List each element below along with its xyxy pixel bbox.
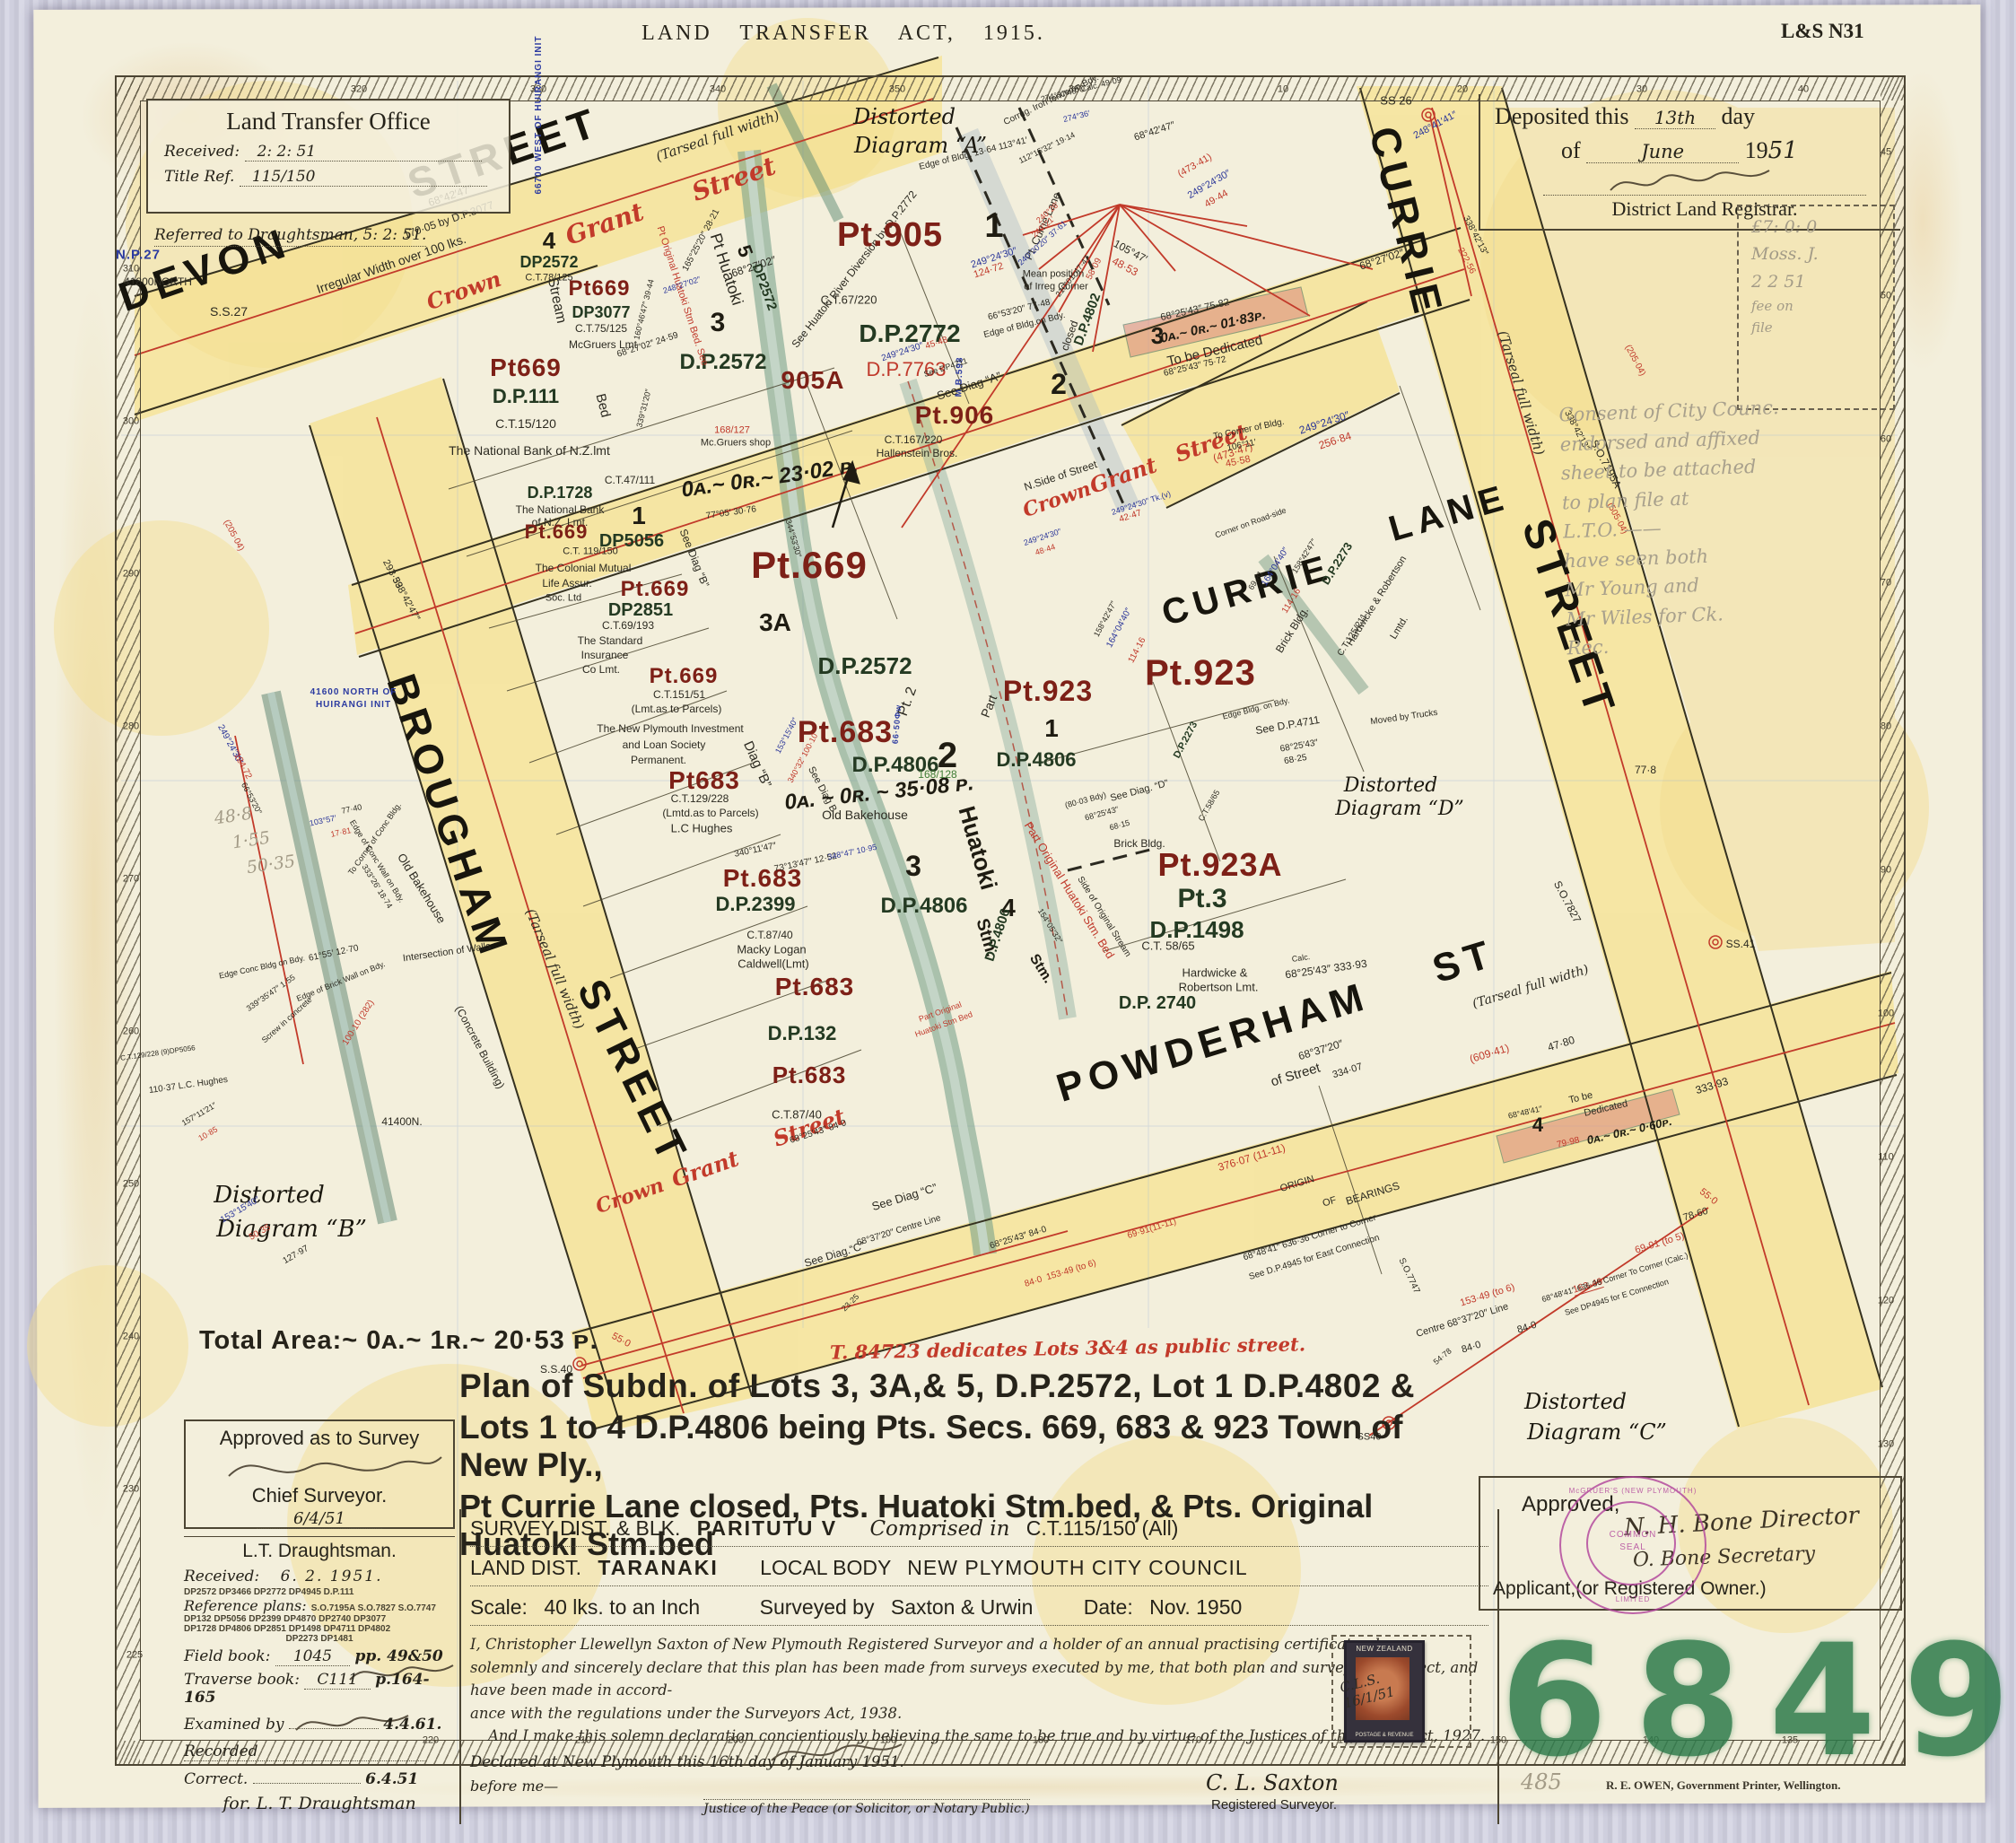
lto-ref-value: 115/150 xyxy=(240,168,487,187)
date-value: Nov. 1950 xyxy=(1139,1595,1242,1619)
map-label: 230 xyxy=(123,1485,139,1495)
seal-seal: SEAL xyxy=(1561,1542,1705,1552)
survey-dist-value: PARITUTU V xyxy=(686,1516,864,1540)
map-label: 1 xyxy=(1044,716,1059,741)
map-label: DP2572 xyxy=(519,254,578,270)
scale-value: 40 lks. to an Inch xyxy=(533,1595,754,1619)
map-label: 300 xyxy=(123,417,139,427)
map-label: Distorted xyxy=(1524,1391,1627,1412)
map-label: Distorted xyxy=(853,106,956,127)
map-label: 270 xyxy=(123,875,139,885)
map-label: 2 xyxy=(1051,370,1067,398)
stamp-country: NEW ZEALAND xyxy=(1347,1645,1422,1653)
deposited-month: June xyxy=(1586,141,1739,163)
ref-plans-line3: DP132 DP5056 DP2399 DP4870 DP2740 DP3077 xyxy=(184,1614,455,1624)
chief-date: 6/4/51 xyxy=(257,1509,382,1529)
map-label: 168/128 xyxy=(918,769,956,780)
local-body-label: LOCAL BODY xyxy=(760,1556,891,1579)
printer-line: R. E. OWEN, Government Printer, Wellingt… xyxy=(1606,1778,1840,1793)
map-label: D.P.2572 xyxy=(680,352,767,373)
land-dist-label: LAND DIST. xyxy=(470,1556,581,1579)
act-title: LAND TRANSFER ACT, 1915. xyxy=(574,22,1113,46)
scale-label: Scale: xyxy=(470,1595,528,1619)
map-label: The New Plymouth Investment xyxy=(597,723,743,734)
map-label: DP3077 xyxy=(572,304,630,320)
map-label: 80 xyxy=(1881,722,1891,732)
plan-title-line2: Lots 1 to 4 D.P.4806 being Pts. Secs. 66… xyxy=(459,1409,1478,1484)
traverse-book-value: C111 xyxy=(304,1671,370,1690)
map-label: D.P.1498 xyxy=(1149,918,1244,941)
nz-revenue-stamp: NEW ZEALAND POSTAGE & REVENUE C.L.S. 16/… xyxy=(1344,1640,1425,1743)
map-label: 350 xyxy=(889,85,905,95)
map-label: D.P. 2740 xyxy=(1119,994,1196,1012)
map-label: Soc. Ltd xyxy=(545,594,581,604)
map-label: The National Bank xyxy=(516,504,605,515)
correct-date: 6.4.51 xyxy=(365,1770,418,1788)
map-label: Distorted xyxy=(214,1184,325,1207)
map-label: Insurance xyxy=(581,650,629,660)
map-label: L.C Hughes xyxy=(671,823,733,834)
survey-plan-sheet: { "header":{"act":"LAND TRANSFER ACT, 19… xyxy=(0,0,2016,1843)
map-label: D.P.4806 xyxy=(881,895,968,917)
map-label: 41600 NORTH OF xyxy=(310,688,397,697)
map-label: 120 xyxy=(1878,1297,1894,1306)
deposited-text: Deposited this xyxy=(1495,103,1629,129)
referred-line: Referred to Draughtsman, 5: 2: 51. xyxy=(154,226,426,247)
map-label: 110 xyxy=(1878,1153,1894,1163)
jp-line: Justice of the Peace (or Solicitor, or N… xyxy=(703,1799,1030,1816)
lto-title: Land Transfer Office xyxy=(148,108,509,135)
map-label: Pt669 xyxy=(568,278,630,300)
pencil-notes: Consent of City Counc.endorsed and affix… xyxy=(1558,389,1899,664)
map-label: 240 xyxy=(123,1332,139,1342)
map-label: Pt.669 xyxy=(650,666,719,687)
map-label: 3A xyxy=(759,610,791,635)
land-dist-value: TARANAKI xyxy=(587,1556,754,1579)
deposited-day: 13th xyxy=(1635,107,1715,129)
map-label: 4 xyxy=(543,229,555,252)
lt-draughtsman: L.T. Draughtsman. xyxy=(184,1536,455,1562)
map-label: Distorted xyxy=(1344,776,1438,796)
map-label: SS 26 xyxy=(1380,95,1411,107)
map-label: C.T.87/40 xyxy=(746,930,792,940)
local-body-value: NEW PLYMOUTH CITY COUNCIL xyxy=(896,1556,1247,1579)
map-label: 168/127 xyxy=(714,426,750,436)
map-label: 30 xyxy=(1636,85,1647,95)
map-label: Pt.905 xyxy=(837,218,943,252)
map-label: C.T.67/220 xyxy=(821,294,877,306)
ref-plans-line1: DP2572 DP3466 DP2772 DP4945 D.P.111 xyxy=(184,1587,455,1597)
comprised-label: Comprised in xyxy=(869,1517,1009,1541)
map-label: Pt.669 xyxy=(751,546,868,584)
map-label: Hallenstein Bros. xyxy=(877,448,958,459)
map-label: 4 xyxy=(1532,1115,1543,1135)
plan-title-line1: Plan of Subdn. of Lots 3, 3A,& 5, D.P.25… xyxy=(459,1367,1478,1405)
lto-ref-label: Title Ref. xyxy=(164,168,234,186)
map-label: (Lmt.as to Parcels) xyxy=(632,703,722,714)
ref-plans-label: Reference plans: xyxy=(184,1597,307,1614)
map-label: Pt.683 xyxy=(772,1063,847,1087)
map-label: C.T.129/228 xyxy=(671,793,729,804)
map-label: 41800NORTH xyxy=(124,276,192,287)
map-label: Pt.923A xyxy=(1157,849,1282,881)
map-label: 90 xyxy=(1881,866,1891,876)
approval-panel: Approved as to Survey Chief Surveyor. 6/… xyxy=(184,1419,455,1813)
map-label: Diagram “D” xyxy=(1335,799,1464,819)
approved-as-to-survey: Approved as to Survey xyxy=(186,1427,453,1450)
map-label: Co Lmt. xyxy=(582,664,620,675)
company-seal-stamp: McGRUER'S (NEW PLYMOUTH) COMMON SEAL LIM… xyxy=(1559,1476,1706,1614)
field-book-pages: pp. 49&50 xyxy=(354,1647,442,1665)
map-label: 3 xyxy=(711,310,726,336)
surveyor-signature: C. L. Saxton xyxy=(1206,1770,1339,1795)
ref-plans-line2: S.O.7195A S.O.7827 S.O.7747 xyxy=(311,1603,436,1613)
map-label: N.P.27 xyxy=(116,249,161,262)
map-label: D.P.132 xyxy=(768,1024,837,1044)
map-label: 905A xyxy=(781,368,845,393)
surveyed-by-value: Saxton & Urwin xyxy=(880,1595,1078,1619)
map-label: 290 xyxy=(123,570,139,580)
map-label: D.P.111 xyxy=(493,387,559,406)
declared-line: Declared at New Plymouth this 16th day o… xyxy=(470,1753,904,1770)
map-label: C.T. 119/150 xyxy=(563,547,618,557)
map-label: 3 xyxy=(905,852,921,880)
lto-received-label: Received: xyxy=(164,143,240,161)
map-label: 280 xyxy=(123,722,139,732)
map-label: 320 xyxy=(351,85,367,95)
chief-surveyor: Chief Surveyor. xyxy=(186,1484,453,1507)
map-label: SS.41 xyxy=(1726,939,1756,949)
map-label: 20 xyxy=(1457,85,1468,95)
pencil-number: 485 xyxy=(1521,1769,1562,1795)
deposited-of: of xyxy=(1561,137,1581,163)
map-label: (Lmtd.as to Parcels) xyxy=(662,808,758,818)
survey-dist-label: SURVEY DIST. & BLK. xyxy=(470,1516,680,1540)
ref-plans-line4: DP1728 DP4806 DP2851 DP1498 DP4711 DP480… xyxy=(184,1624,455,1634)
map-label: Macky Logan xyxy=(737,944,806,956)
map-label: Mc.Gruers shop xyxy=(701,439,771,449)
seal-common: COMMON xyxy=(1561,1530,1705,1540)
surveyed-by-label: Surveyed by xyxy=(760,1595,875,1619)
map-label: HUIRANGI INIT xyxy=(316,701,391,710)
pencil-fee3: file xyxy=(1751,317,1893,338)
lto-received-value: 2: 2: 51 xyxy=(245,143,482,162)
map-label: 225 xyxy=(127,1651,143,1661)
map-label: C.T.87/40 xyxy=(772,1109,822,1121)
traverse-book-label: Traverse book: xyxy=(184,1671,300,1689)
field-book-value: 1045 xyxy=(275,1647,350,1666)
map-label: Pt.669 xyxy=(621,579,690,600)
map-label: 66700 WEST OF HUIRANGI INIT xyxy=(535,35,544,194)
recorded-label: Recorded xyxy=(184,1743,426,1761)
field-book-label: Field book: xyxy=(184,1647,270,1665)
for-draughtsman: for. L. T. Draughtsman xyxy=(184,1794,455,1813)
map-label: 130 xyxy=(1878,1440,1894,1450)
map-label: Caldwell(Lmt) xyxy=(737,958,808,970)
land-transfer-office-box: Land Transfer Office Received: 2: 2: 51 … xyxy=(146,99,511,214)
map-label: The Colonial Mutual xyxy=(536,563,632,573)
map-label: Diagram “C” xyxy=(1527,1421,1667,1443)
map-label: The National Bank of N.Z.lmt xyxy=(449,444,610,457)
ref-plans-line5: DP2273 DP1481 xyxy=(184,1634,455,1644)
map-label: 40 xyxy=(1798,85,1809,95)
map-label: 340 xyxy=(710,85,726,95)
map-label: 250 xyxy=(123,1180,139,1190)
map-label: Pt683 xyxy=(668,768,740,793)
map-label: Pt.906 xyxy=(915,403,995,428)
map-label: 41400N. xyxy=(381,1116,422,1127)
surveyor-title: Registered Surveyor. xyxy=(1211,1797,1337,1812)
map-label: 1 xyxy=(632,503,646,528)
map-label: D.P.2572 xyxy=(817,654,912,677)
seal-limited: LIMITED xyxy=(1561,1595,1705,1603)
map-label: Pt.683 xyxy=(775,974,855,1000)
map-label: Diagram “B” xyxy=(216,1218,367,1241)
map-label: Pt.923 xyxy=(1145,655,1256,691)
map-label: Pt669 xyxy=(490,355,562,380)
comprised-value: C.T.115/150 (All) xyxy=(1016,1516,1179,1540)
map-label: C.T.167/220 xyxy=(885,434,943,445)
map-label: D.P.2399 xyxy=(716,895,796,914)
map-label: Pt.669 xyxy=(525,522,589,542)
map-label: and Loan Society xyxy=(623,739,706,750)
date-label: Date: xyxy=(1084,1595,1133,1619)
stamp-bottom: POSTAGE & REVENUE xyxy=(1347,1733,1422,1738)
map-label: C.T.151/51 xyxy=(653,689,705,700)
map-label: C.T.47/111 xyxy=(605,475,655,485)
map-label: D.P.4806 xyxy=(997,750,1077,770)
map-label: S.S.27 xyxy=(210,305,248,318)
pencil-name: Moss. J. xyxy=(1751,240,1893,267)
pencil-fee-box: £7: 0: 0 Moss. J. 2 2 51 fee on file xyxy=(1737,205,1895,410)
map-label: 77·8 xyxy=(1635,764,1656,775)
correct-label: Correct. xyxy=(184,1770,248,1788)
examined-label: Examined by xyxy=(184,1716,284,1734)
map-label: The Standard xyxy=(578,635,643,646)
pencil-fee2: fee on xyxy=(1751,295,1893,317)
map-label: 260 xyxy=(123,1027,139,1037)
map-label: D.P.1728 xyxy=(528,485,593,501)
map-label: Pt.3 xyxy=(1177,886,1226,913)
map-label: Permanent. xyxy=(631,755,686,765)
sheet-ref: L&S N31 xyxy=(1781,20,1864,43)
map-label: C.T.75/125 xyxy=(575,323,627,334)
deposited-day-label: day xyxy=(1722,103,1756,129)
map-label: Pt.923 xyxy=(1003,677,1093,705)
pencil-date: 2 2 51 xyxy=(1751,268,1893,295)
map-label: C.T. 58/65 xyxy=(1141,940,1194,952)
deposited-yearpre: 19 xyxy=(1745,137,1768,163)
pencil-fee: £7: 0: 0 xyxy=(1751,214,1893,240)
examined-date: 4.4.61. xyxy=(383,1716,441,1734)
plan-number: 6849 xyxy=(1500,1611,2016,1791)
deposited-year: 51 xyxy=(1768,137,1798,164)
map-label: 100 xyxy=(1878,1009,1894,1019)
map-label: Life Assur. xyxy=(542,578,591,589)
seal-company: McGRUER'S (NEW PLYMOUTH) xyxy=(1561,1487,1705,1495)
map-label: C.T.69/193 xyxy=(602,620,654,631)
map-label: 10 xyxy=(1278,85,1288,95)
received-label: Received: xyxy=(184,1568,259,1585)
map-label: Robertson Lmt. xyxy=(1179,982,1259,993)
before-me: before me— xyxy=(470,1777,558,1795)
map-label: C.T.15/120 xyxy=(495,417,556,430)
received-value: 6. 2. 1951. xyxy=(265,1568,383,1585)
map-label: 1 xyxy=(984,209,1003,243)
map-label: Hardwicke & xyxy=(1183,967,1248,979)
total-area: Total Area:~ 0ᴀ.~ 1ʀ.~ 20·53 ᴘ. xyxy=(199,1326,598,1356)
map-label: DP2851 xyxy=(608,601,673,619)
